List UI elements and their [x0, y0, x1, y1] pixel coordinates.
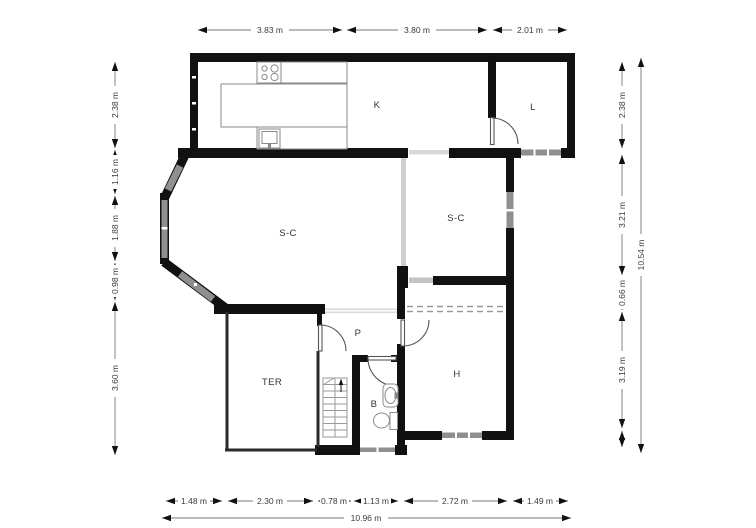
window-tick [468, 433, 470, 439]
dim-label: 1.48 m [181, 496, 207, 506]
dim-label: 2.38 m [110, 92, 120, 118]
window-tick [192, 102, 196, 105]
door-arc-terrace [320, 325, 346, 351]
dim-label: 3.80 m [404, 25, 430, 35]
wall-kitchen-laundry [488, 62, 496, 118]
wall-post [395, 445, 407, 455]
toilet-tank [390, 413, 398, 430]
wall [449, 148, 521, 158]
dimensions-top: 3.83 m 3.80 m 2.01 m [198, 25, 567, 36]
window-tick [192, 128, 196, 131]
kitchen-island [221, 84, 347, 127]
dim-label: 2.01 m [517, 25, 543, 35]
room-label-laundry: L [530, 102, 536, 113]
room-label-bedroom: H [453, 369, 460, 380]
room-label-living-left: S-C [279, 228, 297, 239]
window-laundry [521, 150, 561, 156]
dim-label: 0.98 m [110, 268, 120, 294]
dim-label: 1.49 m [527, 496, 553, 506]
washbasin-bowl [385, 388, 396, 404]
opening-living-bedroom [409, 278, 433, 284]
wall-bedroom-bottom [482, 431, 514, 440]
door-leaf-bath [368, 357, 396, 361]
dim-label-total: 10.96 m [351, 513, 382, 523]
window-tick [547, 150, 549, 156]
burner-icon [262, 74, 267, 79]
wall [567, 53, 575, 158]
beam-living-divider [401, 158, 406, 268]
door-leaf-laundry [491, 118, 495, 145]
window-tick [534, 150, 536, 156]
window-tick [455, 433, 457, 439]
dim-label: 0.78 m [321, 496, 347, 506]
dim-label: 2.38 m [617, 92, 627, 118]
dimensions-left: 2.38 m 1.16 m 1.88 m 0.98 m 3.60 m [110, 62, 121, 455]
dim-label: 2.30 m [257, 496, 283, 506]
wall-livingroom-bottom [214, 304, 325, 314]
room-label-kitchen: K [374, 100, 381, 111]
window-tick [507, 209, 514, 212]
room-label-living-right: S-C [447, 213, 465, 224]
stairs [323, 378, 347, 437]
window-bay-lower [180, 274, 213, 299]
wall-right [506, 228, 514, 440]
washbasin-tap [395, 393, 399, 399]
burner-icon [271, 73, 278, 80]
door-arc-bath [368, 358, 396, 386]
room-label-terrace: TER [262, 377, 282, 388]
wall [561, 148, 575, 158]
wall [190, 53, 198, 149]
wall-bedroom-bottom [404, 431, 442, 440]
wall-stub [317, 314, 322, 326]
dim-label: 3.60 m [110, 365, 120, 391]
window-tick [162, 227, 168, 230]
dimensions-bottom: 1.48 m 2.30 m 0.78 m 1.13 m 2.72 m 1.49 … [162, 496, 571, 524]
window-tick [377, 448, 379, 453]
dim-label: 1.88 m [110, 215, 120, 241]
wall-bedroom-left [397, 285, 405, 319]
wall-stairs-bath [352, 355, 360, 455]
room-label-bath: B [371, 399, 378, 410]
burner-icon [271, 65, 278, 72]
wall-bottom-stairs [315, 445, 360, 455]
dimensions-right: 2.38 m 3.21 m 0.66 m 3.19 m 10.54 m [617, 58, 647, 453]
door-leaf-terrace [319, 325, 323, 351]
opening-kitchen-living [409, 150, 449, 155]
floor-plan-page: K L S-C S-C P TER B H 3.83 m 3.80 m 2.01… [0, 0, 756, 528]
kitchen-sink-basin [262, 132, 277, 144]
wall-post [397, 266, 408, 288]
sill-gap [325, 310, 397, 312]
dim-label-total: 10.54 m [636, 240, 646, 271]
wall-bedroom-top [433, 276, 506, 285]
wall-right [506, 158, 514, 192]
dim-label: 0.66 m [617, 280, 627, 306]
door-arc-laundry [492, 118, 518, 144]
kitchen-fixtures [221, 62, 347, 149]
dim-label: 3.21 m [617, 202, 627, 228]
room-label-hall: P [355, 328, 362, 339]
dim-label: 3.83 m [257, 25, 283, 35]
kitchen-faucet [268, 143, 271, 148]
dim-label: 2.72 m [442, 496, 468, 506]
dim-label: 3.19 m [617, 357, 627, 383]
door-arc-bedroom [403, 320, 429, 346]
burner-icon [262, 66, 267, 71]
toilet-icon [374, 413, 390, 428]
window-tick [194, 283, 197, 286]
window-bedroom [442, 433, 482, 439]
floor-plan-drawing: K L S-C S-C P TER B H 3.83 m 3.80 m 2.01… [0, 0, 756, 528]
dim-label: 1.16 m [110, 159, 120, 185]
door-leaf-bedroom [401, 320, 405, 346]
wall [190, 53, 575, 62]
window-tick [192, 76, 196, 79]
dim-label: 1.13 m [363, 496, 389, 506]
